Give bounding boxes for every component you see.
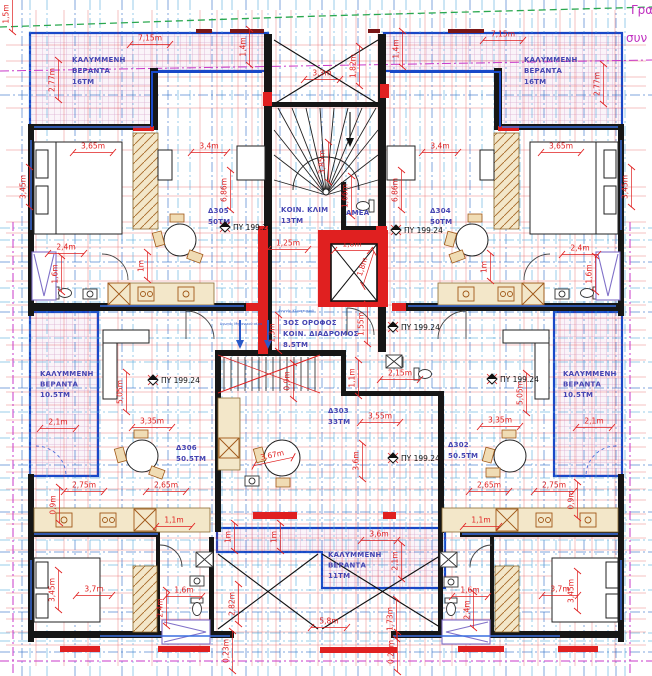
dimension-label: 1,8m xyxy=(342,240,361,249)
dimension-label: 1,6m xyxy=(51,264,60,283)
dimension: 5,8m xyxy=(308,617,350,632)
dimension-label: 1,73m xyxy=(386,607,395,631)
shelf xyxy=(237,146,265,180)
level-marker-label: ΠΥ 199.24 xyxy=(500,375,539,384)
dimension-label: 3,35m xyxy=(140,417,164,426)
dimension-label: 1,1m xyxy=(164,516,183,525)
dimension-label: 1,4m xyxy=(239,37,248,56)
dimension-label: 2,4m xyxy=(56,243,75,252)
dimension: 3,6m xyxy=(352,440,367,482)
dimension-label: 3,4m xyxy=(430,142,449,151)
dimension-label: 3,45m xyxy=(621,175,630,199)
dimension-label: 3,6m xyxy=(352,451,361,470)
dimension-label: 3,45m xyxy=(567,579,576,603)
dimension-label: 3,4m xyxy=(199,142,218,151)
dimension: 3,55m xyxy=(357,412,403,427)
green-setback-line xyxy=(0,7,652,27)
dimension-label: 2,65m xyxy=(477,481,501,490)
dimension-label: 3,3m xyxy=(312,69,331,78)
level-marker-label: ΠΥ 199.24 xyxy=(161,376,200,385)
dimension-label: 6,86m xyxy=(220,178,229,202)
level-marker-label: ΠΥ 199.24 xyxy=(404,226,443,235)
dimension-label: 5,8m xyxy=(319,617,338,626)
shelf xyxy=(387,146,415,180)
dimension-label: 2,75m xyxy=(72,481,96,490)
level-marker: ΠΥ 199.24 xyxy=(388,453,440,463)
dimension: 1,5m xyxy=(2,0,17,35)
marker-diamond-fill xyxy=(148,375,158,380)
dimension-tick xyxy=(250,462,257,470)
floor-plan-sheet: 1,5m7,15m7,15m1,4m1,4m1,82m3,3m2,77m2,77… xyxy=(0,0,652,676)
dimension-label: 7,15m xyxy=(491,30,515,39)
dimension-label: 5,05m xyxy=(516,381,525,405)
elevator-shaft xyxy=(331,244,377,301)
dimension-label: 2,15m xyxy=(388,369,412,378)
dimension: 3,4m xyxy=(188,142,230,157)
duct-label: Αγωγός Μηχανικού αέρα xyxy=(220,322,263,326)
boundary-note-top: Γρα xyxy=(631,3,652,17)
sofa xyxy=(103,330,149,343)
dimension-label: 1,6m xyxy=(585,264,594,283)
dimension-label: 1,5m xyxy=(2,4,11,23)
dimension-label: 2,1m xyxy=(584,417,603,426)
dimension-label: 6,86m xyxy=(391,178,400,202)
room-label-amea-wc: ΑΜΕΑ xyxy=(346,209,370,217)
dimension-label: 1m xyxy=(270,531,279,543)
dimension-label: 2,1m xyxy=(48,418,67,427)
level-marker-label: ΠΥ 199.24 xyxy=(233,223,272,232)
duct-label: Αγωγός Κλιματισμού xyxy=(278,309,314,313)
dimension-label: 1m xyxy=(137,260,146,272)
dimension-label: 3,35m xyxy=(488,416,512,425)
room-label-unit-d303: Δ30333ΤΜ xyxy=(328,407,350,426)
dimension-label: 0,25m xyxy=(387,640,396,664)
dimension-label: 5,05m xyxy=(116,380,125,404)
dimension-label: 3,65m xyxy=(81,142,105,151)
dimension: 2,65m xyxy=(466,481,512,496)
dimension-label: 1,6m xyxy=(460,586,479,595)
dimension-label: 0,23m xyxy=(222,639,231,663)
dimension-label: 2,4m xyxy=(570,244,589,253)
dimension-label: 2,4m xyxy=(156,598,165,617)
floor-plan-svg: 1,5m7,15m7,15m1,4m1,4m1,82m3,3m2,77m2,77… xyxy=(0,0,652,676)
dimension-label: 2,75m xyxy=(542,481,566,490)
dimension-label: 2,4m xyxy=(463,600,472,619)
level-marker-label: ΠΥ 199.24 xyxy=(401,323,440,332)
dimension-label: 0,9m xyxy=(283,371,292,390)
marker-diamond-fill xyxy=(391,225,401,230)
dimension-label: 2,82m xyxy=(228,592,237,616)
dimension-label: 2,77m xyxy=(48,68,57,92)
dimension: 2,65m xyxy=(143,481,189,496)
dimension-label: 7,15m xyxy=(138,34,162,43)
dimension: 1,55m xyxy=(357,301,372,347)
dimension-label: 1,25m xyxy=(276,239,300,248)
boundary-note-bottom: συν xyxy=(626,31,647,45)
dimension-label: 3,45m xyxy=(48,578,57,602)
dimension-label: 3,6m xyxy=(369,530,388,539)
dimension-label: 3,45m xyxy=(19,175,28,199)
dimension-label: 1,4m xyxy=(392,39,401,58)
level-marker: ΠΥ 199.24 xyxy=(388,322,440,332)
sofa xyxy=(503,330,549,343)
marker-diamond-fill xyxy=(487,374,497,379)
dimension-label: 2,65m xyxy=(154,481,178,490)
marker-diamond-fill xyxy=(388,322,398,327)
dimension-label: 1,1m xyxy=(348,368,357,387)
room-label-unit-d304: Δ30450ΤΜ xyxy=(430,207,452,226)
dimension-label: 1,3m xyxy=(268,323,277,342)
marker-diamond-fill xyxy=(388,453,398,458)
dimension-label: 1,6m xyxy=(174,586,193,595)
level-marker-label: ΠΥ 199.24 xyxy=(401,454,440,463)
dimension-label: 1m xyxy=(224,531,233,543)
dimension-label: 2,1m xyxy=(391,551,400,570)
dimension-label: 3,65m xyxy=(549,142,573,151)
dimension-label: 3,55m xyxy=(368,412,392,421)
level-marker: ΠΥ 199.24 xyxy=(391,225,443,235)
dimension-label: 1,1m xyxy=(471,516,490,525)
windows-layer xyxy=(152,72,500,127)
dimension-label: 1,66m xyxy=(341,184,350,208)
level-marker: ΠΥ 199.24 xyxy=(487,374,539,384)
dimension-label: 0,9m xyxy=(49,495,58,514)
level-marker: ΠΥ 199.24 xyxy=(148,375,200,385)
dimension-label: 0,9m xyxy=(567,490,576,509)
dimension: 1m xyxy=(137,249,152,283)
dimension-label: 2,77m xyxy=(593,72,602,96)
dimension-label: 3,7m xyxy=(84,585,103,594)
room-label-unit-d302: Δ30250.5ΤΜ xyxy=(448,441,478,460)
dimension-label: 1,82m xyxy=(349,54,358,78)
dimension-label: 1m xyxy=(480,261,489,273)
room-label-unit-d305: Δ30550ΤΜ xyxy=(208,207,230,226)
straight-stair xyxy=(218,355,320,393)
dimension-label: 3,85m xyxy=(318,150,327,174)
